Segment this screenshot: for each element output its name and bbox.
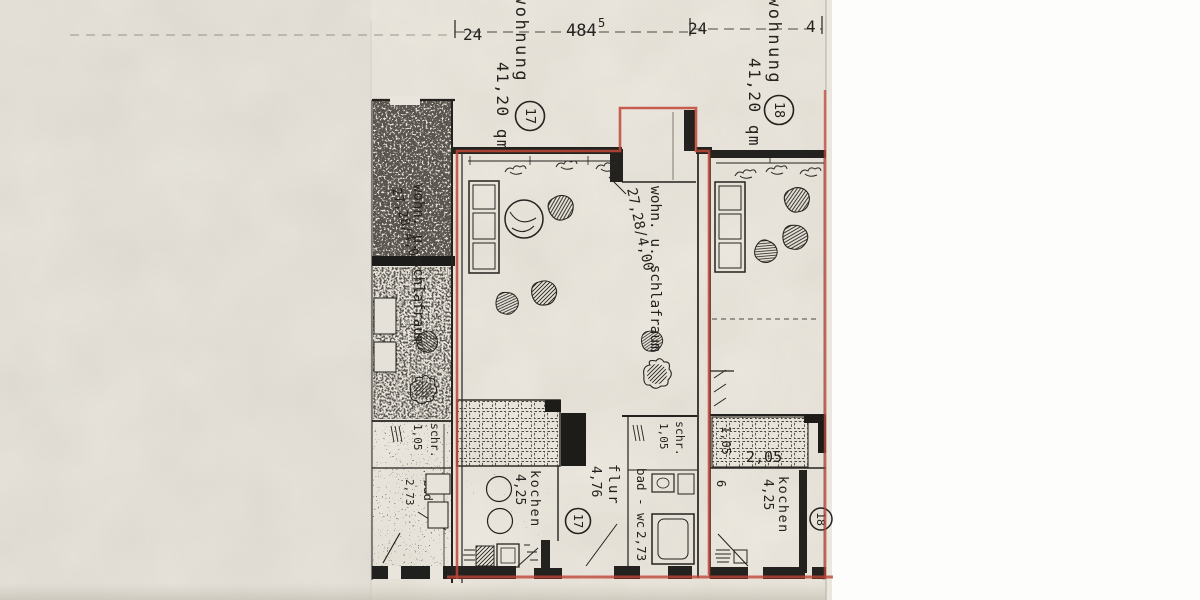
floor-plan-svg: 24 484 5 24 4 wohnung 41,20 qm 17 wohnun…	[0, 0, 1200, 600]
floor-noise	[372, 583, 812, 596]
floor-noise	[712, 330, 824, 415]
apt17-closet-dim: 1,05	[657, 423, 670, 450]
sink	[497, 544, 519, 567]
apartment-18: 1,05 2,05 6 kochen 4,25 18	[710, 150, 832, 580]
furniture	[374, 298, 396, 334]
dimension-label-484: 484	[566, 21, 597, 41]
left-apt-closet-label: schr.	[428, 423, 442, 458]
stove	[476, 546, 494, 566]
wall	[545, 400, 561, 412]
floor-plan-photo: 24 484 5 24 4 wohnung 41,20 qm 17 wohnun…	[0, 0, 1200, 600]
dimension-label-24-left: 24	[463, 25, 482, 44]
bath-fixture	[426, 474, 450, 494]
window	[390, 96, 420, 105]
left-apartment: wohn. u. schlafraum 27,28/4,00 schr. 1,0…	[372, 96, 455, 580]
apt18-dim-c: 6	[714, 480, 728, 487]
furniture	[374, 342, 396, 372]
apt17-kitchen-label: kochen	[527, 470, 543, 528]
apt18-number: 18	[771, 102, 787, 118]
apt17-hall-label: flur	[605, 464, 621, 506]
apt18-kitchen-label: kochen	[775, 476, 791, 534]
left-apt-closet-dim: 1,05	[411, 424, 424, 451]
apt18-area-label: 41,20 qm	[745, 58, 764, 147]
apt17-kitchen-dim: 4,25	[512, 474, 527, 505]
left-apt-bath-dim: 2,73	[403, 479, 416, 506]
wall	[561, 413, 586, 466]
door-opening	[430, 566, 443, 579]
dimension-superscript-5: 5	[598, 16, 605, 30]
apt18-kitchen-dim: 4,25	[760, 479, 775, 510]
apt17-number: 17	[522, 108, 538, 124]
apt17-bath-dim: 2,73	[634, 531, 649, 561]
apt18-dim-b: 2,05	[746, 448, 782, 466]
bay-wall	[684, 110, 695, 151]
wall	[541, 540, 550, 570]
apt17-wohnung-label: wohnung	[511, 0, 531, 83]
dimension-label-24-right: 24	[688, 19, 707, 38]
tiled-area	[457, 400, 560, 466]
apt17-hall-dim: 4,76	[588, 466, 603, 497]
dimension-label-4: 4	[806, 17, 816, 36]
wall	[710, 150, 826, 158]
apt17-bath-label: bad - wc	[634, 468, 649, 528]
background-white	[832, 0, 1200, 600]
floor-noise	[463, 170, 608, 265]
door-opening	[388, 566, 401, 579]
apt17-closet-label: schr.	[673, 421, 687, 456]
wall	[799, 470, 807, 573]
apt17-floor-number: 17	[571, 514, 585, 528]
apt18-dim-a: 1,05	[719, 426, 733, 455]
chair-sketch	[532, 281, 557, 305]
apt17-area-label: 41,20 qm	[493, 62, 512, 151]
bath-fixture	[428, 502, 448, 528]
apt18-wohnung-label: wohnung	[764, 0, 784, 85]
